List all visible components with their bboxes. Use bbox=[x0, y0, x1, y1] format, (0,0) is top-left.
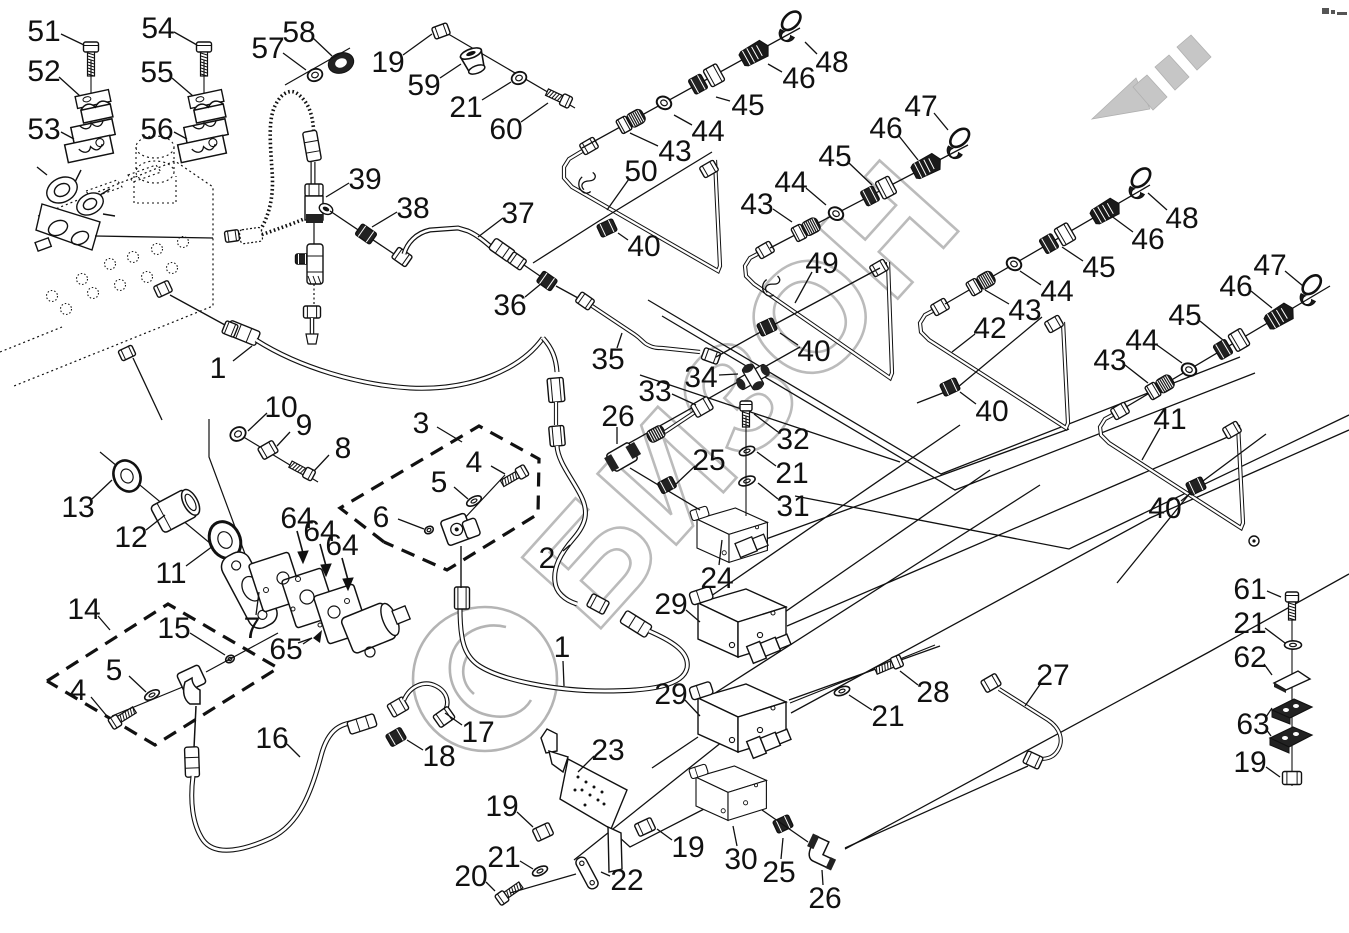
svg-text:3: 3 bbox=[413, 407, 430, 440]
svg-text:22: 22 bbox=[610, 864, 643, 897]
svg-text:56: 56 bbox=[140, 113, 173, 146]
svg-text:29: 29 bbox=[654, 588, 687, 621]
svg-text:25: 25 bbox=[692, 444, 725, 477]
svg-text:1: 1 bbox=[210, 352, 227, 385]
svg-text:25: 25 bbox=[762, 856, 795, 889]
svg-text:5: 5 bbox=[106, 654, 123, 687]
svg-text:42: 42 bbox=[973, 312, 1006, 345]
svg-text:19: 19 bbox=[671, 831, 704, 864]
svg-text:34: 34 bbox=[684, 361, 717, 394]
svg-text:15: 15 bbox=[157, 612, 190, 645]
svg-text:40: 40 bbox=[975, 395, 1008, 428]
svg-text:11: 11 bbox=[155, 557, 186, 590]
svg-text:44: 44 bbox=[691, 115, 724, 148]
svg-text:60: 60 bbox=[489, 113, 522, 146]
svg-text:50: 50 bbox=[624, 155, 657, 188]
svg-text:38: 38 bbox=[396, 192, 429, 225]
svg-text:29: 29 bbox=[654, 678, 687, 711]
svg-text:45: 45 bbox=[731, 89, 764, 122]
svg-text:21: 21 bbox=[775, 457, 808, 490]
svg-text:32: 32 bbox=[776, 423, 809, 456]
svg-text:16: 16 bbox=[255, 722, 288, 755]
svg-text:59: 59 bbox=[407, 69, 440, 102]
svg-text:36: 36 bbox=[493, 289, 526, 322]
svg-text:55: 55 bbox=[140, 56, 173, 89]
svg-text:2: 2 bbox=[539, 542, 556, 575]
svg-text:43: 43 bbox=[658, 135, 691, 168]
svg-text:62: 62 bbox=[1233, 641, 1266, 674]
svg-text:4: 4 bbox=[466, 446, 483, 479]
svg-text:43: 43 bbox=[1008, 294, 1041, 327]
svg-text:64: 64 bbox=[325, 529, 358, 562]
svg-text:47: 47 bbox=[904, 90, 937, 123]
svg-text:14: 14 bbox=[67, 593, 100, 626]
svg-text:44: 44 bbox=[1040, 275, 1073, 308]
svg-text:46: 46 bbox=[1219, 270, 1252, 303]
svg-text:24: 24 bbox=[700, 562, 733, 595]
svg-text:57: 57 bbox=[251, 32, 284, 65]
svg-text:18: 18 bbox=[422, 740, 455, 773]
svg-text:21: 21 bbox=[871, 700, 904, 733]
svg-text:27: 27 bbox=[1036, 659, 1069, 692]
svg-text:63: 63 bbox=[1236, 708, 1269, 741]
svg-text:58: 58 bbox=[282, 16, 315, 49]
svg-text:19: 19 bbox=[1233, 746, 1266, 779]
svg-text:46: 46 bbox=[782, 62, 815, 95]
svg-text:40: 40 bbox=[627, 230, 660, 263]
svg-text:43: 43 bbox=[1093, 344, 1126, 377]
svg-text:45: 45 bbox=[1082, 251, 1115, 284]
svg-text:54: 54 bbox=[141, 12, 174, 45]
svg-text:19: 19 bbox=[371, 46, 404, 79]
svg-text:19: 19 bbox=[485, 790, 518, 823]
svg-text:61: 61 bbox=[1233, 573, 1266, 606]
svg-text:10: 10 bbox=[264, 391, 297, 424]
svg-text:5: 5 bbox=[431, 466, 448, 499]
svg-text:40: 40 bbox=[1148, 492, 1181, 525]
svg-text:46: 46 bbox=[1131, 223, 1164, 256]
svg-text:17: 17 bbox=[461, 716, 494, 749]
svg-text:53: 53 bbox=[27, 113, 60, 146]
svg-text:47: 47 bbox=[1253, 249, 1286, 282]
svg-text:20: 20 bbox=[454, 860, 487, 893]
svg-text:28: 28 bbox=[916, 676, 949, 709]
svg-text:39: 39 bbox=[348, 163, 381, 196]
svg-text:7: 7 bbox=[244, 612, 261, 645]
svg-text:4: 4 bbox=[70, 674, 87, 707]
svg-text:43: 43 bbox=[740, 188, 773, 221]
svg-text:12: 12 bbox=[114, 521, 147, 554]
svg-text:45: 45 bbox=[818, 140, 851, 173]
svg-text:21: 21 bbox=[1233, 607, 1266, 640]
svg-text:30: 30 bbox=[724, 843, 757, 876]
svg-text:35: 35 bbox=[591, 343, 624, 376]
svg-text:45: 45 bbox=[1168, 299, 1201, 332]
svg-text:1: 1 bbox=[554, 631, 571, 664]
svg-text:46: 46 bbox=[869, 112, 902, 145]
svg-text:51: 51 bbox=[27, 15, 60, 48]
svg-text:44: 44 bbox=[1125, 324, 1158, 357]
svg-text:21: 21 bbox=[449, 91, 482, 124]
svg-text:37: 37 bbox=[501, 197, 534, 230]
svg-text:44: 44 bbox=[774, 166, 807, 199]
svg-text:26: 26 bbox=[808, 882, 841, 915]
svg-text:33: 33 bbox=[638, 375, 671, 408]
svg-text:23: 23 bbox=[591, 734, 624, 767]
svg-text:52: 52 bbox=[27, 55, 60, 88]
svg-text:31: 31 bbox=[776, 490, 809, 523]
svg-text:48: 48 bbox=[815, 46, 848, 79]
svg-text:40: 40 bbox=[797, 335, 830, 368]
svg-text:48: 48 bbox=[1165, 202, 1198, 235]
svg-text:65: 65 bbox=[269, 633, 302, 666]
svg-text:8: 8 bbox=[335, 432, 352, 465]
svg-text:9: 9 bbox=[296, 409, 313, 442]
svg-text:6: 6 bbox=[373, 501, 390, 534]
svg-text:21: 21 bbox=[487, 841, 520, 874]
svg-text:13: 13 bbox=[61, 491, 94, 524]
svg-text:26: 26 bbox=[601, 400, 634, 433]
